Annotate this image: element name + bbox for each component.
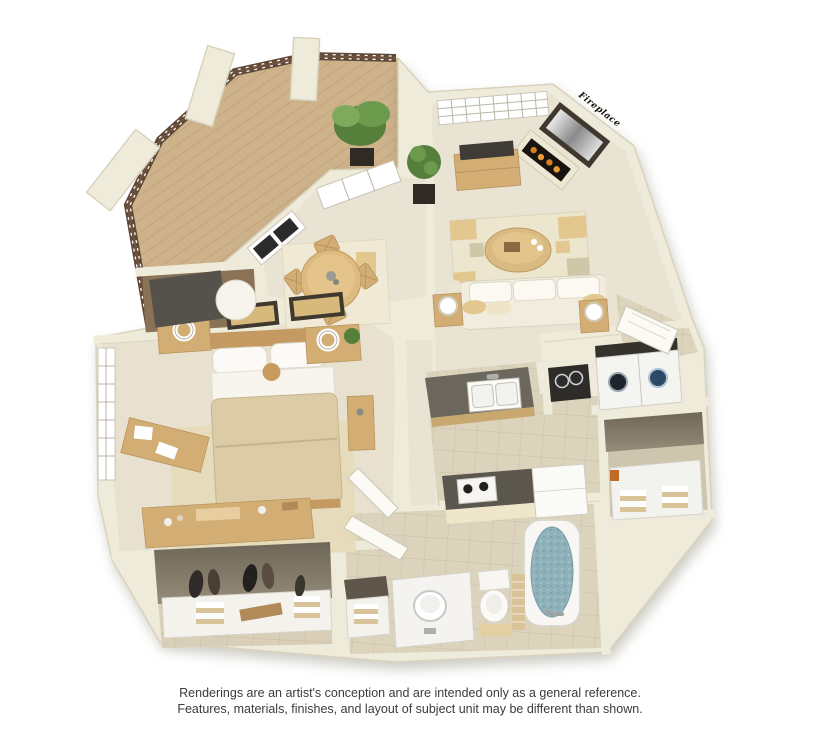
toilet [478, 569, 512, 636]
disclaimer-line-1: Renderings are an artist's conception an… [0, 686, 820, 702]
towel-stack [662, 486, 688, 508]
closet-item [610, 470, 619, 481]
range-counter [442, 468, 545, 524]
towel-stack [294, 596, 320, 618]
bedroom-side-table [347, 396, 375, 451]
pantry-closet [548, 364, 591, 402]
water-heater [216, 280, 256, 320]
towel-stack [620, 490, 646, 512]
tv-console [453, 140, 521, 190]
tub-water [531, 527, 573, 617]
vanity [392, 572, 474, 648]
floorplan-page: Fireplace [0, 0, 820, 740]
disclaimer: Renderings are an artist's conception an… [0, 686, 820, 717]
bath-linen-shelf [344, 576, 390, 638]
end-table-right [579, 299, 609, 333]
walkin-closet [154, 542, 332, 638]
disclaimer-line-2: Features, materials, finishes, and layou… [0, 702, 820, 718]
end-table-left [433, 293, 463, 327]
floorplan-rendering: Fireplace [0, 0, 820, 740]
stove [457, 476, 497, 503]
refrigerator [532, 464, 588, 518]
nightstand-right [305, 324, 361, 364]
bath-mat [480, 624, 512, 636]
towel-stack [196, 602, 224, 624]
bedroom-window [98, 348, 115, 480]
coffee-table [485, 228, 551, 272]
